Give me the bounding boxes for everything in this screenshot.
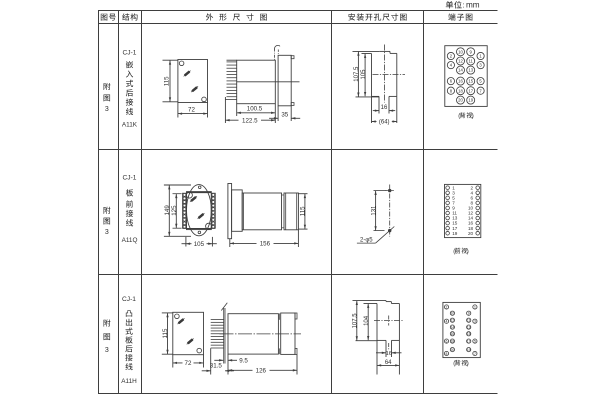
svg-text:16: 16 <box>458 79 463 84</box>
svg-text:20: 20 <box>468 231 474 236</box>
svg-text:122.5: 122.5 <box>242 117 258 124</box>
svg-text:105: 105 <box>194 241 205 248</box>
svg-text:107.5: 107.5 <box>353 313 359 329</box>
svg-text:149: 149 <box>164 205 171 216</box>
svg-text:125: 125 <box>171 205 178 216</box>
svg-text:3: 3 <box>105 106 109 113</box>
svg-text:126: 126 <box>256 367 267 374</box>
svg-text:156: 156 <box>260 241 271 248</box>
svg-text:3: 3 <box>105 229 109 236</box>
svg-text:): ) <box>467 361 469 367</box>
svg-text:13: 13 <box>467 325 471 329</box>
svg-text:15: 15 <box>467 332 471 336</box>
svg-text:10: 10 <box>451 312 455 316</box>
svg-text:CJ-1: CJ-1 <box>122 296 136 303</box>
svg-text:CJ-1: CJ-1 <box>123 50 137 57</box>
svg-text:14: 14 <box>451 325 455 329</box>
svg-text:72: 72 <box>185 360 192 367</box>
svg-text:18: 18 <box>458 88 463 93</box>
svg-text:6: 6 <box>446 339 448 343</box>
svg-text:72: 72 <box>188 107 195 114</box>
svg-text:104: 104 <box>364 315 370 326</box>
svg-text:(64): (64) <box>379 120 390 126</box>
svg-text:35: 35 <box>281 112 288 119</box>
svg-text:2: 2 <box>446 305 448 309</box>
svg-text:18: 18 <box>451 339 455 343</box>
svg-text:A11H: A11H <box>121 378 137 385</box>
svg-text:A11Q: A11Q <box>122 237 138 244</box>
svg-text:16: 16 <box>386 351 392 357</box>
svg-text:31.5: 31.5 <box>210 363 223 370</box>
svg-text:19: 19 <box>467 348 471 352</box>
svg-text:A11K: A11K <box>122 121 138 128</box>
svg-text:16: 16 <box>451 332 455 336</box>
svg-text:15: 15 <box>468 79 473 84</box>
svg-text:1: 1 <box>474 305 476 309</box>
svg-text:): ) <box>467 249 469 255</box>
svg-text:131: 131 <box>371 205 377 216</box>
svg-text:9.5: 9.5 <box>239 357 248 364</box>
svg-text:13: 13 <box>468 68 473 73</box>
svg-text:8: 8 <box>446 352 448 356</box>
svg-text:3: 3 <box>105 347 109 354</box>
svg-text:100.5: 100.5 <box>247 106 263 113</box>
svg-text:4: 4 <box>446 320 448 324</box>
svg-text:2-φ5: 2-φ5 <box>360 238 373 244</box>
svg-text:7: 7 <box>474 352 476 356</box>
svg-text:115: 115 <box>163 76 170 86</box>
svg-text:mm: mm <box>466 1 480 10</box>
svg-text:9: 9 <box>468 312 470 316</box>
svg-text:10: 10 <box>458 49 463 54</box>
svg-text:CJ-1: CJ-1 <box>123 175 137 182</box>
svg-text:105: 105 <box>361 69 367 80</box>
svg-text:17: 17 <box>467 339 471 343</box>
svg-text:20: 20 <box>451 348 455 352</box>
svg-text:3: 3 <box>474 320 476 324</box>
svg-text:115: 115 <box>162 328 169 338</box>
svg-text:(: ( <box>453 249 455 255</box>
svg-text:14: 14 <box>458 68 463 73</box>
svg-text:12: 12 <box>451 319 455 323</box>
svg-text:): ) <box>472 114 474 120</box>
svg-text:20: 20 <box>458 98 463 103</box>
svg-text:19: 19 <box>452 231 458 236</box>
svg-text:12: 12 <box>458 59 463 64</box>
svg-text::: : <box>463 1 465 10</box>
svg-text:19: 19 <box>468 98 473 103</box>
svg-text:107.5: 107.5 <box>354 66 360 82</box>
svg-text:17: 17 <box>468 88 473 93</box>
svg-text:16: 16 <box>381 105 388 111</box>
svg-text:11: 11 <box>469 59 474 64</box>
svg-text:115: 115 <box>300 206 307 216</box>
svg-text:5: 5 <box>474 339 476 343</box>
svg-text:11: 11 <box>467 319 471 323</box>
